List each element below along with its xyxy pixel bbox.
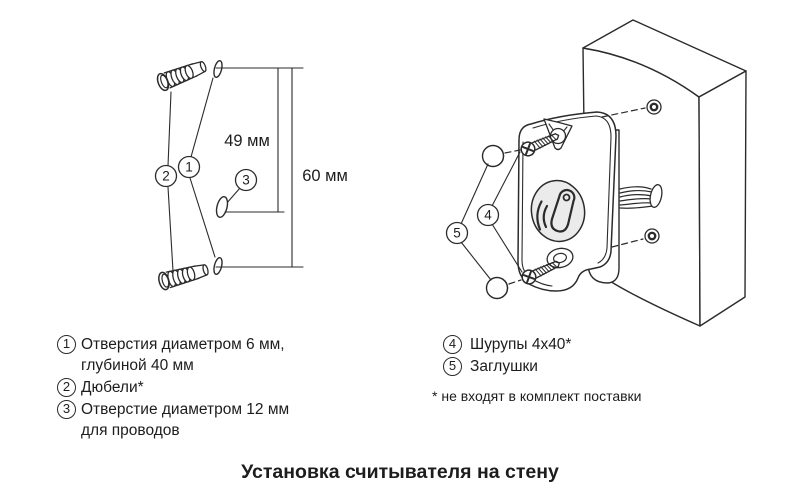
svg-text:3: 3 <box>242 173 250 188</box>
legend-num-3: 3 <box>57 400 76 419</box>
drill-hole-top <box>212 60 223 78</box>
callout-3: 3 <box>236 170 257 191</box>
footnote: * не входят в комплект поставки <box>432 386 642 407</box>
dimension-lines <box>216 68 303 267</box>
dowel-top <box>155 58 208 92</box>
cap-bottom <box>487 278 508 299</box>
wire-hole <box>215 196 230 219</box>
legend-text: глубиной 40 мм <box>81 355 285 376</box>
dowel-bottom <box>157 261 210 291</box>
legend-left: 1 Отверстия диаметром 6 мм, глубиной 40 … <box>57 334 289 442</box>
legend-text: Дюбели* <box>81 377 144 398</box>
legend-text: Шурупы 4x40* <box>470 334 571 355</box>
cap-top <box>483 146 504 167</box>
legend-text: Отверстия диаметром 6 мм, <box>81 334 285 355</box>
legend-item-3: 3 Отверстие диаметром 12 мм для проводов <box>57 399 289 441</box>
callout-leader-lines-left <box>168 78 240 271</box>
legend-right: 4 Шурупы 4x40* 5 Заглушки * не входят в … <box>432 334 642 407</box>
legend-text: Заглушки <box>470 356 538 377</box>
installation-diagrams: 49 мм 60 мм 1 2 3 <box>0 0 800 332</box>
legend-text: Отверстие диаметром 12 мм <box>81 399 289 420</box>
callout-5: 5 <box>447 223 468 244</box>
legend-text: для проводов <box>81 420 289 441</box>
installation-instruction-page: 49 мм 60 мм 1 2 3 <box>0 0 800 502</box>
drilling-template-diagram: 49 мм 60 мм 1 2 3 <box>155 58 347 291</box>
legend-item-5: 5 Заглушки <box>432 356 642 377</box>
legend-item-2: 2 Дюбели* <box>57 377 289 398</box>
wall-hole-top <box>647 100 661 114</box>
callout-1: 1 <box>179 157 200 178</box>
legend-num-4: 4 <box>443 335 462 354</box>
page-title: Установка считывателя на стену <box>0 461 800 484</box>
legend-num-5: 5 <box>443 357 462 376</box>
callout-4: 4 <box>478 205 499 226</box>
wall-hole-bottom <box>645 229 659 243</box>
legend-item-4: 4 Шурупы 4x40* <box>432 334 642 355</box>
svg-text:1: 1 <box>185 160 193 175</box>
svg-text:5: 5 <box>453 226 461 241</box>
wall-mount-diagram: 4 5 <box>447 20 747 326</box>
dimension-label-60mm: 60 мм <box>302 167 348 185</box>
drill-hole-bottom <box>212 257 223 275</box>
callout-2: 2 <box>156 166 177 187</box>
legend-num-2: 2 <box>57 378 76 397</box>
reader-device <box>518 112 616 291</box>
legend-item-1: 1 Отверстия диаметром 6 мм, глубиной 40 … <box>57 334 289 376</box>
svg-text:4: 4 <box>484 208 492 223</box>
svg-text:2: 2 <box>162 169 170 184</box>
legend-num-1: 1 <box>57 335 76 354</box>
dimension-label-49mm: 49 мм <box>224 132 270 150</box>
